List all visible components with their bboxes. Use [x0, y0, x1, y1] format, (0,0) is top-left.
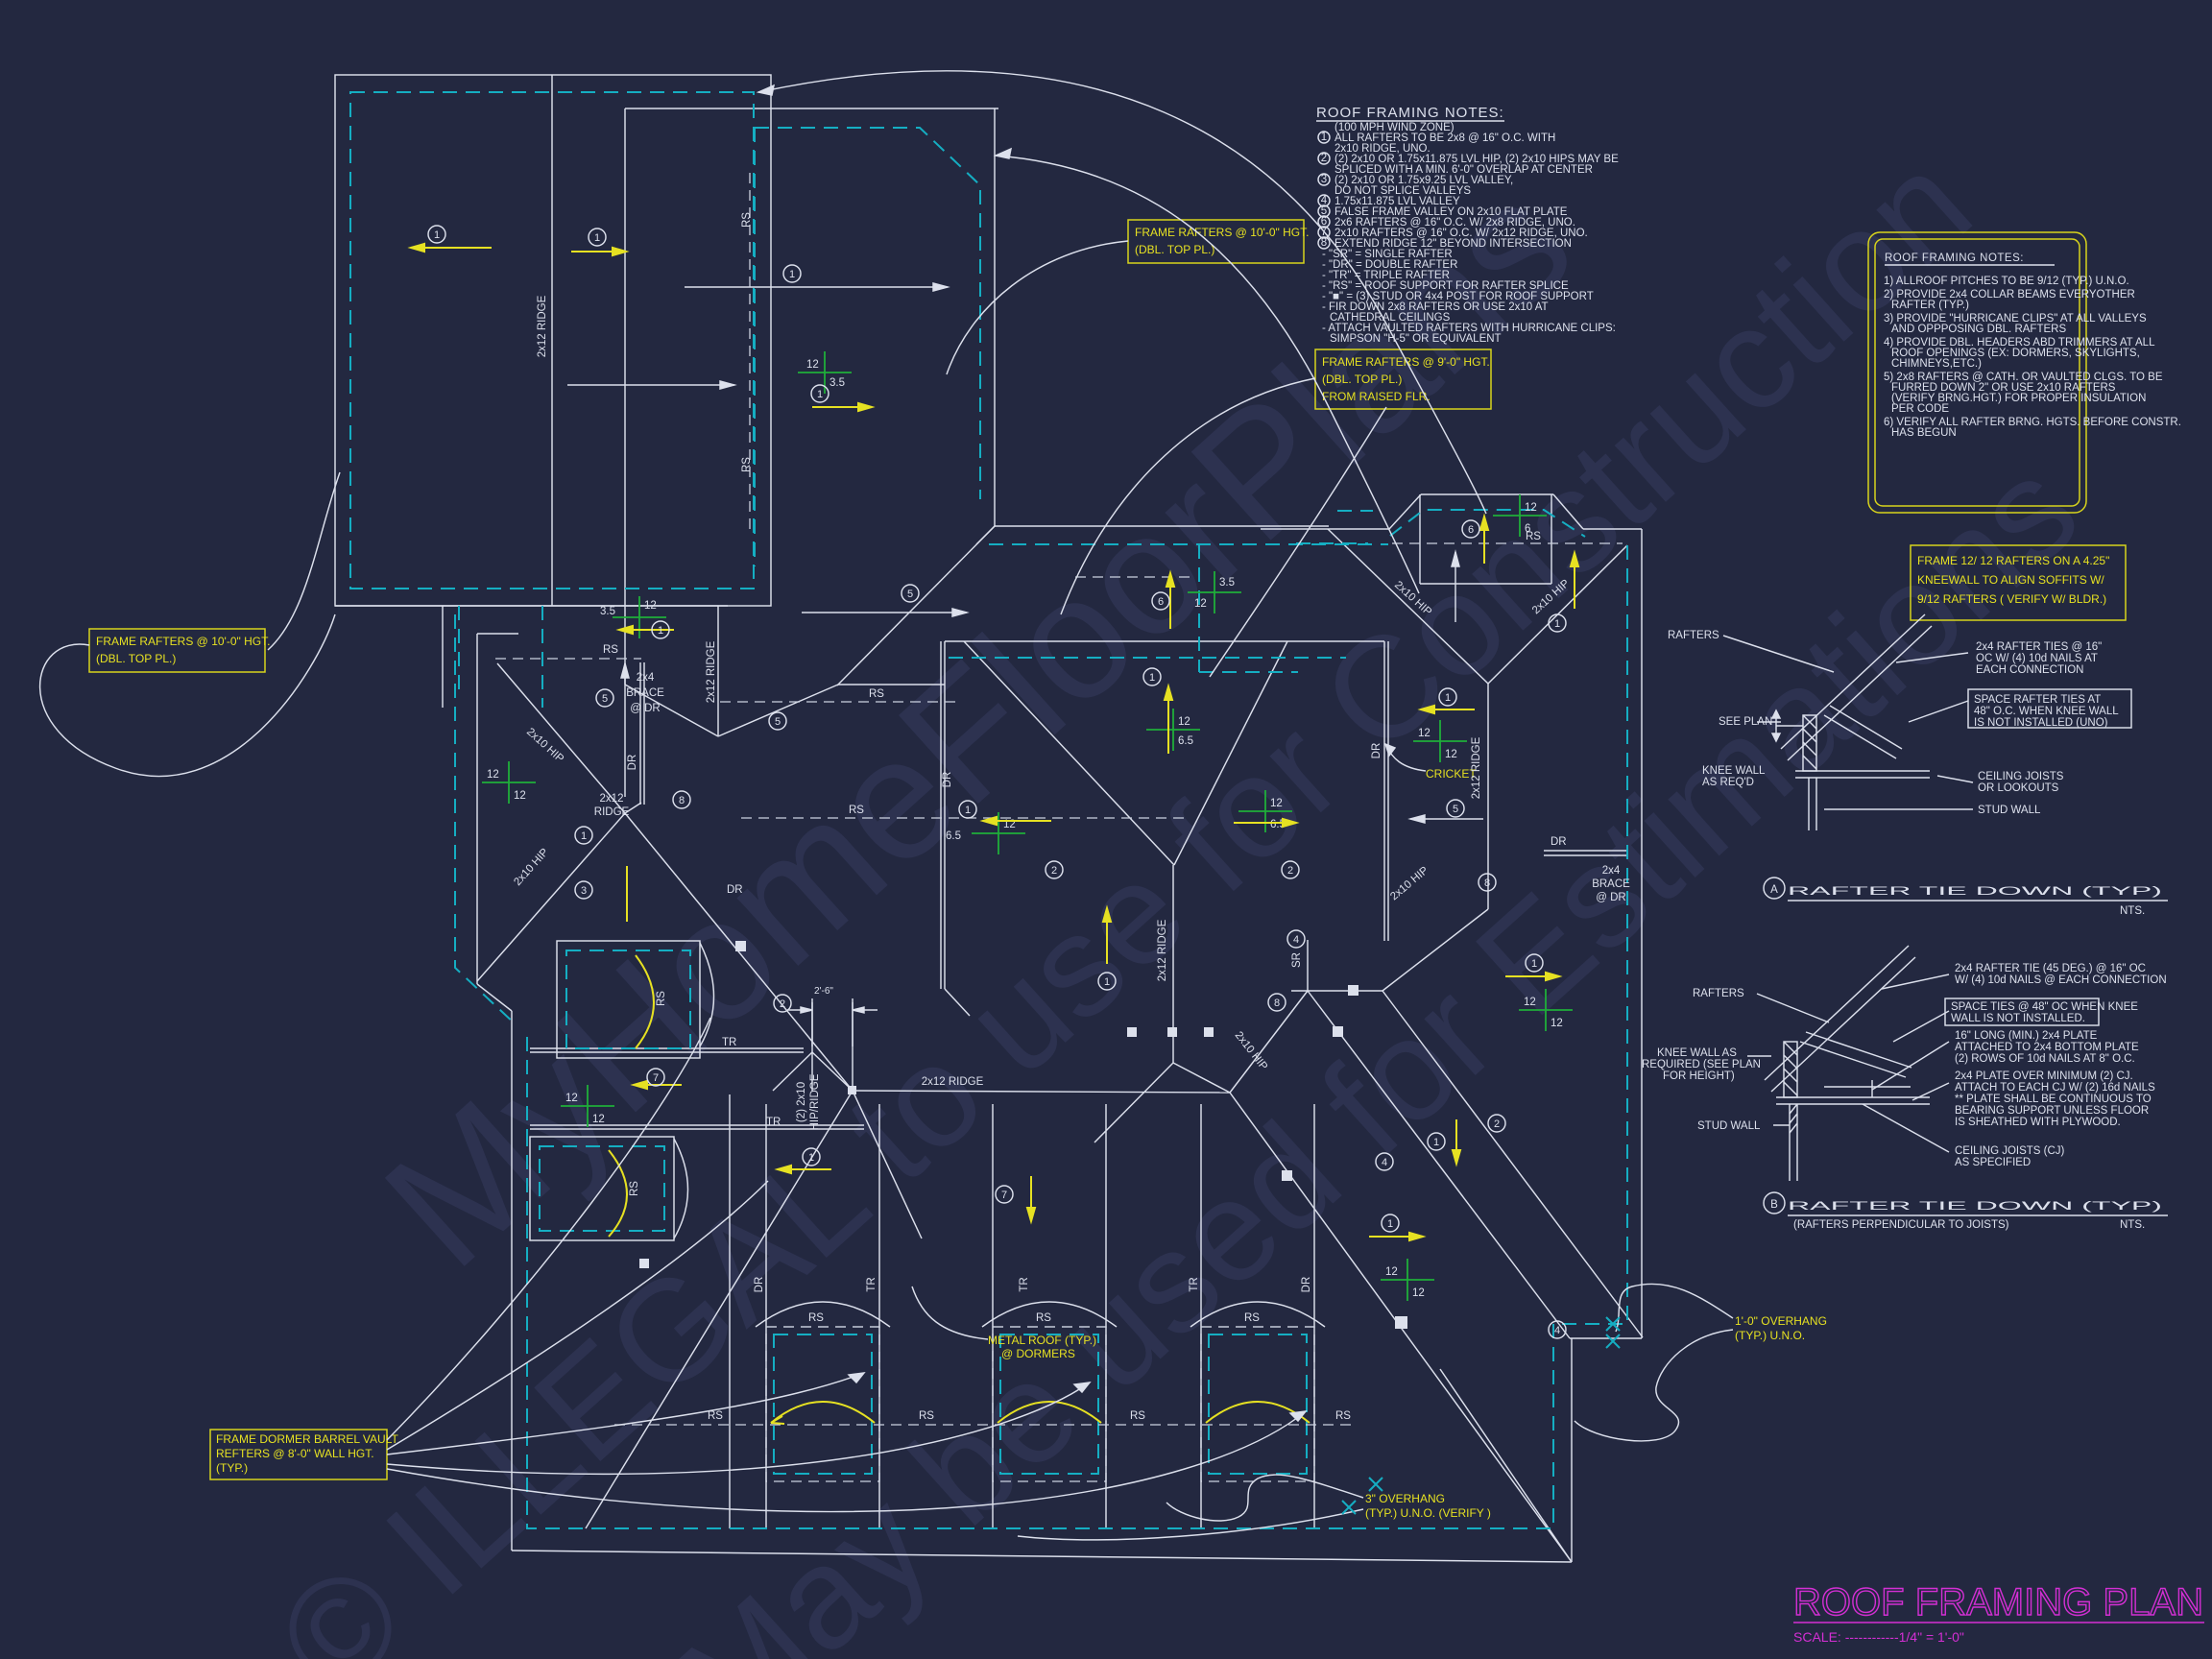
svg-text:PER CODE: PER CODE: [1891, 403, 1949, 415]
svg-text:DR: DR: [1551, 836, 1567, 848]
svg-text:1: 1: [789, 269, 795, 280]
svg-text:2: 2: [780, 998, 785, 1010]
svg-text:8: 8: [1484, 878, 1490, 889]
svg-text:@ DR: @ DR: [1596, 892, 1625, 903]
svg-text:OR LOOKOUTS: OR LOOKOUTS: [1978, 782, 2059, 794]
svg-text:DR: DR: [1301, 1277, 1312, 1293]
svg-text:12: 12: [487, 769, 499, 781]
svg-text:2x4: 2x4: [637, 672, 655, 684]
svg-text:12: 12: [514, 790, 526, 802]
svg-text:DR: DR: [1371, 743, 1382, 759]
svg-text:KNEE WALL: KNEE WALL: [1702, 765, 1766, 777]
svg-text:2'-6": 2'-6": [814, 986, 833, 997]
svg-text:AS SPECIFIED: AS SPECIFIED: [1955, 1157, 2031, 1168]
svg-text:9/12 RAFTERS ( VERIFY W/ BLDR.: 9/12 RAFTERS ( VERIFY W/ BLDR.): [1917, 592, 2106, 606]
svg-text:** PLATE SHALL BE CONTINUOUS T: ** PLATE SHALL BE CONTINUOUS TO: [1955, 1094, 2152, 1105]
svg-text:ATTACH TO EACH CJ W/ (2) 16d N: ATTACH TO EACH CJ W/ (2) 16d NAILS: [1955, 1082, 2155, 1094]
svg-text:(DBL. TOP PL.): (DBL. TOP PL.): [1135, 243, 1214, 256]
svg-text:IS SHEATHED WITH PLYWOOD.: IS SHEATHED WITH PLYWOOD.: [1955, 1117, 2121, 1128]
svg-text:DR: DR: [727, 884, 743, 896]
svg-text:4: 4: [1554, 1325, 1560, 1336]
svg-text:2: 2: [1494, 1118, 1500, 1130]
svg-text:HAS BEGUN: HAS BEGUN: [1891, 427, 1957, 439]
svg-text:STUD WALL: STUD WALL: [1697, 1120, 1761, 1132]
svg-text:6.5: 6.5: [1178, 735, 1193, 747]
svg-text:B: B: [1770, 1199, 1778, 1211]
svg-text:RAFTER (TYP.): RAFTER (TYP.): [1891, 300, 1969, 311]
svg-text:BEARING SUPPORT UNLESS FLOOR: BEARING SUPPORT UNLESS FLOOR: [1955, 1105, 2149, 1117]
svg-text:1: 1: [808, 1152, 814, 1164]
svg-text:IS NOT INSTALLED (UNO): IS NOT INSTALLED (UNO): [1974, 717, 2108, 729]
svg-text:RS: RS: [603, 644, 618, 656]
svg-text:SIMPSON "H-5" OR EQUIVALENT: SIMPSON "H-5" OR EQUIVALENT: [1330, 333, 1502, 345]
svg-text:1: 1: [1321, 132, 1327, 143]
svg-text:BRACE: BRACE: [626, 687, 664, 699]
svg-text:ATTACHED TO 2x4 BOTTOM PLATE: ATTACHED TO 2x4 BOTTOM PLATE: [1955, 1042, 2139, 1053]
svg-text:RS: RS: [741, 457, 753, 472]
svg-text:2x4 RAFTER TIES @ 16": 2x4 RAFTER TIES @ 16": [1976, 641, 2102, 653]
svg-text:(2) ROWS OF 10d NAILS AT 8" O.: (2) ROWS OF 10d NAILS AT 8" O.C.: [1955, 1053, 2135, 1065]
svg-text:3.5: 3.5: [829, 377, 845, 389]
svg-text:1: 1: [1445, 692, 1451, 704]
svg-text:1: 1: [1433, 1137, 1439, 1148]
svg-text:TR: TR: [766, 1117, 781, 1128]
svg-text:DR: DR: [942, 772, 953, 788]
svg-text:6: 6: [1158, 596, 1164, 608]
svg-text:(DBL. TOP PL.): (DBL. TOP PL.): [96, 652, 176, 665]
svg-text:ROOF FRAMING PLAN: ROOF FRAMING PLAN: [1793, 1581, 2203, 1623]
svg-text:12: 12: [565, 1093, 578, 1104]
svg-text:NTS.: NTS.: [2120, 1219, 2145, 1231]
svg-text:WALL IS NOT INSTALLED.: WALL IS NOT INSTALLED.: [1951, 1013, 2085, 1024]
svg-text:12: 12: [1385, 1266, 1398, 1278]
svg-text:@ DORMERS: @ DORMERS: [1001, 1347, 1075, 1360]
svg-text:1: 1: [1531, 958, 1537, 970]
svg-text:TR: TR: [1189, 1277, 1200, 1291]
svg-text:RAFTER TIE DOWN (TYP): RAFTER TIE DOWN (TYP): [1788, 1201, 2162, 1213]
svg-text:3.5: 3.5: [600, 606, 615, 617]
svg-text:12: 12: [806, 359, 819, 371]
svg-text:RS: RS: [741, 212, 753, 228]
svg-text:12: 12: [1524, 997, 1536, 1008]
svg-text:FRAME DORMER BARREL VAULT: FRAME DORMER BARREL VAULT: [216, 1432, 398, 1446]
svg-text:BRACE: BRACE: [1592, 878, 1630, 890]
svg-text:(RAFTERS PERPENDICULAR TO JOIS: (RAFTERS PERPENDICULAR TO JOISTS): [1793, 1219, 2009, 1231]
svg-text:1: 1: [1104, 976, 1110, 988]
svg-text:12: 12: [644, 600, 657, 612]
svg-text:RIDGE: RIDGE: [594, 806, 630, 818]
svg-text:12: 12: [1412, 1287, 1425, 1299]
svg-text:CEILING JOISTS (CJ): CEILING JOISTS (CJ): [1955, 1145, 2065, 1157]
svg-text:REFTERS @ 8'-0" WALL HGT.: REFTERS @ 8'-0" WALL HGT.: [216, 1447, 374, 1460]
svg-text:8: 8: [679, 795, 685, 806]
svg-text:RS: RS: [708, 1410, 723, 1422]
svg-text:RS: RS: [1526, 531, 1541, 542]
svg-text:16" LONG (MIN.) 2x4 PLATE: 16" LONG (MIN.) 2x4 PLATE: [1955, 1030, 2098, 1042]
svg-text:6: 6: [1468, 524, 1474, 536]
svg-text:4: 4: [1382, 1157, 1387, 1168]
svg-text:@ DR: @ DR: [630, 703, 660, 714]
svg-text:2x4 RAFTER TIE (45 DEG.) @ 16": 2x4 RAFTER TIE (45 DEG.) @ 16" OC: [1955, 963, 2146, 974]
svg-text:2x12: 2x12: [600, 793, 624, 805]
svg-text:12: 12: [1418, 728, 1431, 739]
svg-text:2x12 RIDGE: 2x12 RIDGE: [1471, 736, 1482, 799]
svg-text:ROOF FRAMING NOTES:: ROOF FRAMING NOTES:: [1316, 105, 1504, 121]
svg-text:EACH CONNECTION: EACH CONNECTION: [1976, 664, 2083, 676]
svg-text:48" O.C. WHEN KNEE WALL: 48" O.C. WHEN KNEE WALL: [1974, 706, 2119, 717]
svg-text:5: 5: [1453, 804, 1458, 815]
svg-text:12: 12: [1525, 502, 1537, 514]
svg-text:REQUIRED (SEE PLAN: REQUIRED (SEE PLAN: [1642, 1059, 1761, 1070]
svg-text:(TYP.) U.N.O.: (TYP.) U.N.O.: [1735, 1329, 1805, 1342]
svg-text:12: 12: [592, 1114, 605, 1125]
svg-text:ROOF FRAMING NOTES:: ROOF FRAMING NOTES:: [1885, 252, 2024, 264]
svg-text:1: 1: [581, 830, 587, 842]
svg-text:RS: RS: [849, 805, 864, 816]
svg-text:3" OVERHANG: 3" OVERHANG: [1365, 1492, 1445, 1505]
svg-text:7: 7: [653, 1072, 659, 1084]
svg-text:12: 12: [1445, 749, 1457, 760]
svg-text:RS: RS: [629, 1181, 640, 1196]
svg-text:A: A: [1770, 884, 1778, 896]
svg-text:5: 5: [602, 693, 608, 705]
svg-text:KNEE WALL AS: KNEE WALL AS: [1657, 1047, 1737, 1059]
svg-text:2x4 PLATE OVER MINIMUM (2) CJ.: 2x4 PLATE OVER MINIMUM (2) CJ.: [1955, 1070, 2133, 1082]
svg-text:5: 5: [907, 589, 913, 600]
svg-text:3.5: 3.5: [1219, 577, 1235, 589]
svg-text:12: 12: [1178, 716, 1190, 728]
svg-text:2: 2: [1287, 865, 1293, 877]
svg-text:RAFTERS: RAFTERS: [1668, 630, 1719, 641]
svg-text:1: 1: [434, 229, 440, 241]
svg-text:5: 5: [775, 716, 781, 728]
svg-text:RS: RS: [919, 1410, 934, 1422]
svg-text:FRAME 12/ 12 RAFTERS ON A 4.25: FRAME 12/ 12 RAFTERS ON A 4.25": [1917, 554, 2109, 567]
svg-text:1: 1: [965, 805, 971, 816]
svg-text:RS: RS: [808, 1312, 824, 1324]
svg-text:12: 12: [1551, 1018, 1563, 1029]
svg-text:SEE PLAN: SEE PLAN: [1719, 716, 1772, 728]
svg-text:2x4: 2x4: [1602, 865, 1621, 877]
svg-text:RAFTERS: RAFTERS: [1693, 988, 1744, 999]
svg-text:2x12 RIDGE: 2x12 RIDGE: [537, 295, 548, 357]
svg-text:3: 3: [581, 885, 587, 897]
svg-text:12: 12: [1270, 798, 1283, 809]
svg-text:RS: RS: [1130, 1410, 1145, 1422]
svg-text:METAL ROOF (TYP.): METAL ROOF (TYP.): [988, 1334, 1096, 1347]
svg-text:STUD WALL: STUD WALL: [1978, 805, 2041, 816]
svg-text:8: 8: [1321, 237, 1327, 249]
svg-text:2x12 RIDGE: 2x12 RIDGE: [1157, 919, 1168, 981]
svg-text:TR: TR: [866, 1277, 878, 1291]
svg-text:1: 1: [658, 625, 663, 637]
svg-text:FOR HEIGHT): FOR HEIGHT): [1663, 1070, 1735, 1082]
svg-text:SR: SR: [1291, 952, 1303, 968]
svg-text:CRICKET: CRICKET: [1426, 767, 1477, 781]
svg-text:8: 8: [1274, 998, 1280, 1009]
svg-text:2x12 RIDGE: 2x12 RIDGE: [706, 640, 717, 703]
svg-text:1: 1: [1554, 618, 1560, 630]
svg-text:(2) 2x10: (2) 2x10: [796, 1082, 807, 1122]
svg-text:FRAME RAFTERS @ 10'-0" HGT.: FRAME RAFTERS @ 10'-0" HGT.: [1135, 226, 1309, 239]
svg-text:1: 1: [817, 389, 823, 400]
svg-text:CHIMNEYS,ETC.): CHIMNEYS,ETC.): [1891, 358, 1982, 370]
svg-text:(DBL. TOP PL.): (DBL. TOP PL.): [1322, 373, 1402, 386]
svg-text:KNEEWALL TO ALIGN SOFFITS W/: KNEEWALL TO ALIGN SOFFITS W/: [1917, 573, 2104, 587]
svg-text:DR: DR: [754, 1277, 765, 1293]
svg-text:(TYP.): (TYP.): [216, 1461, 248, 1475]
svg-text:RS: RS: [656, 991, 667, 1006]
svg-text:AS REQ'D: AS REQ'D: [1702, 777, 1754, 788]
svg-text:2x12 RIDGE: 2x12 RIDGE: [922, 1076, 984, 1088]
svg-text:FRAME RAFTERS @ 10'-0" HGT.: FRAME RAFTERS @ 10'-0" HGT.: [96, 635, 270, 648]
svg-text:DR: DR: [627, 755, 638, 771]
svg-text:SCALE: ------------1/4" = 1'-0: SCALE: ------------1/4" = 1'-0": [1793, 1629, 1964, 1645]
svg-text:RS: RS: [1244, 1312, 1260, 1324]
svg-text:2: 2: [1321, 153, 1327, 164]
svg-text:1'-0" OVERHANG: 1'-0" OVERHANG: [1735, 1314, 1827, 1328]
svg-text:NTS.: NTS.: [2120, 905, 2145, 917]
svg-text:3: 3: [1321, 174, 1327, 185]
svg-text:W/ (4) 10d NAILS @ EACH CONNEC: W/ (4) 10d NAILS @ EACH CONNECTION: [1955, 974, 2167, 986]
svg-text:7: 7: [1001, 1190, 1007, 1201]
svg-text:4: 4: [1293, 934, 1299, 946]
svg-text:HIP/RIDGE: HIP/RIDGE: [809, 1073, 821, 1130]
svg-text:TR: TR: [722, 1037, 736, 1048]
svg-text:(TYP.) U.N.O. (VERIFY ): (TYP.) U.N.O. (VERIFY ): [1365, 1506, 1491, 1520]
svg-text:RAFTER TIE DOWN (TYP): RAFTER TIE DOWN (TYP): [1788, 886, 2162, 898]
svg-text:SPACE TIES @ 48" OC WHEN KNEE: SPACE TIES @ 48" OC WHEN KNEE: [1951, 1001, 2138, 1013]
svg-text:12: 12: [1194, 598, 1207, 610]
svg-text:SPACE RAFTER TIES AT: SPACE RAFTER TIES AT: [1974, 694, 2101, 706]
svg-text:RS: RS: [1036, 1312, 1051, 1324]
svg-text:OC W/ (4) 10d NAILS AT: OC W/ (4) 10d NAILS AT: [1976, 653, 2098, 664]
svg-text:1) ALLROOF PITCHES TO BE 9/12: 1) ALLROOF PITCHES TO BE 9/12 (TYP.) U.N…: [1884, 276, 2129, 287]
svg-text:2: 2: [1051, 865, 1057, 877]
svg-text:AND OPPPOSING DBL. RAFTERS: AND OPPPOSING DBL. RAFTERS: [1891, 324, 2066, 335]
svg-text:1: 1: [1149, 672, 1155, 684]
svg-text:TR: TR: [1019, 1277, 1030, 1291]
svg-text:1: 1: [1387, 1218, 1393, 1230]
svg-text:RS: RS: [1335, 1410, 1351, 1422]
svg-text:FRAME RAFTERS @ 9'-0" HGT.: FRAME RAFTERS @ 9'-0" HGT.: [1322, 355, 1490, 369]
svg-text:FROM RAISED FLR.: FROM RAISED FLR.: [1322, 390, 1431, 403]
svg-text:RS: RS: [869, 688, 884, 700]
svg-text:6.5: 6.5: [946, 830, 961, 842]
svg-text:1: 1: [594, 232, 600, 244]
svg-text:CEILING JOISTS: CEILING JOISTS: [1978, 771, 2064, 782]
